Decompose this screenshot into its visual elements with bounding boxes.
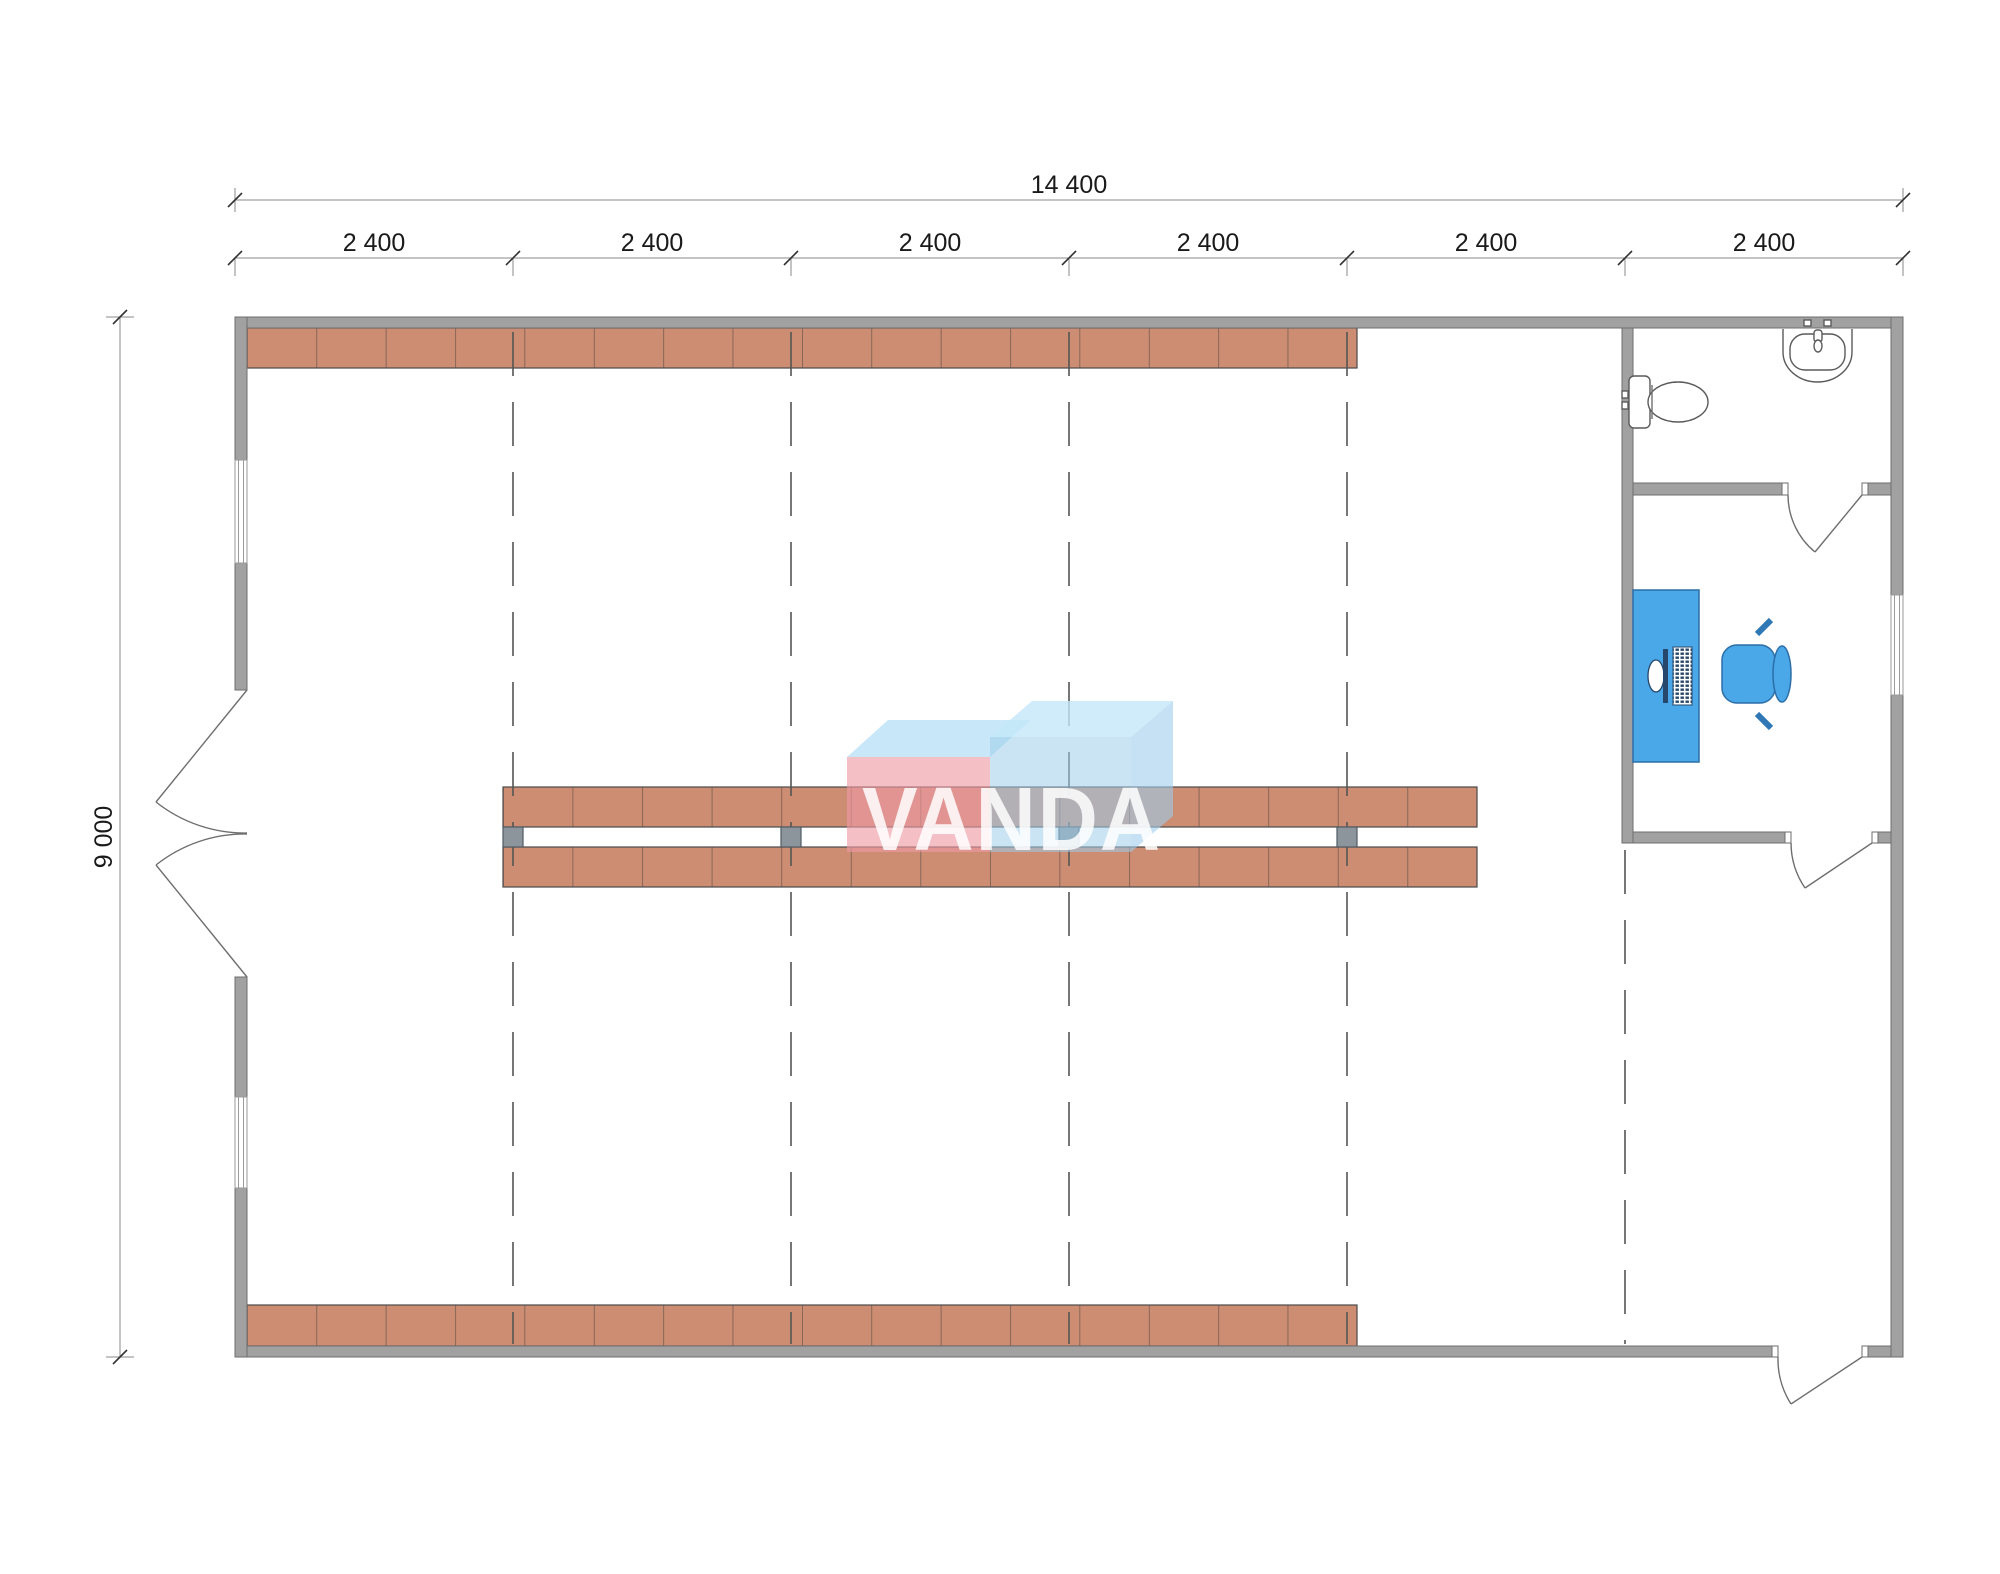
wall-top (235, 317, 1903, 328)
shelf-run-top (247, 328, 1357, 368)
window-left-upper (235, 460, 247, 563)
entrance-double-door (156, 690, 247, 977)
keyboard-icon (1673, 647, 1692, 705)
watermark-text: VANDA (862, 770, 1162, 870)
office-desk (1633, 590, 1699, 762)
window-left-lower (235, 1097, 247, 1188)
window-right-office (1891, 595, 1903, 695)
shelf-post (503, 827, 523, 847)
floor-plan-page: VANDA (0, 0, 2000, 1574)
wall-left-segment (235, 1188, 247, 1357)
dim-bay-label: 2 400 (1177, 229, 1240, 257)
dim-overall-width-label: 14 400 (1031, 171, 1107, 199)
interior-partitions (1622, 328, 1891, 1357)
floor-plan-canvas: VANDA (0, 0, 2000, 1574)
bathroom-door (1788, 495, 1862, 552)
shelf-post (781, 827, 801, 847)
dim-bay-label: 2 400 (899, 229, 962, 257)
dim-bay-label: 2 400 (1455, 229, 1518, 257)
dim-overall-height-label: 9 000 (90, 806, 118, 869)
office-bottom-wall (1633, 832, 1785, 843)
office-chair (1722, 620, 1791, 728)
shelf-run-bottom (247, 1305, 1357, 1346)
wall-right-segment (1891, 317, 1903, 595)
dim-bay-label: 2 400 (343, 229, 406, 257)
rear-exit-door (1778, 1357, 1862, 1404)
toilet-icon (1622, 376, 1708, 428)
bathroom-bottom-wall (1633, 483, 1782, 495)
dim-bay-label: 2 400 (621, 229, 684, 257)
dimension-overall-height: 9 000 (90, 310, 134, 1364)
wall-right-segment (1891, 695, 1903, 1357)
wall-left-segment (235, 563, 247, 690)
dim-bay-label: 2 400 (1733, 229, 1796, 257)
wall-left-segment (235, 317, 247, 460)
office-door (1791, 843, 1872, 888)
shelf-post (1337, 827, 1357, 847)
dimension-bays: 2 400 2 400 2 400 2 400 2 400 2 400 (228, 229, 1910, 276)
wall-bottom-left-run (235, 1346, 1772, 1357)
dimension-overall-width: 14 400 (228, 171, 1910, 212)
sink-icon (1783, 320, 1852, 382)
wall-left-segment (235, 977, 247, 1097)
watermark-logo: VANDA (847, 701, 1173, 870)
